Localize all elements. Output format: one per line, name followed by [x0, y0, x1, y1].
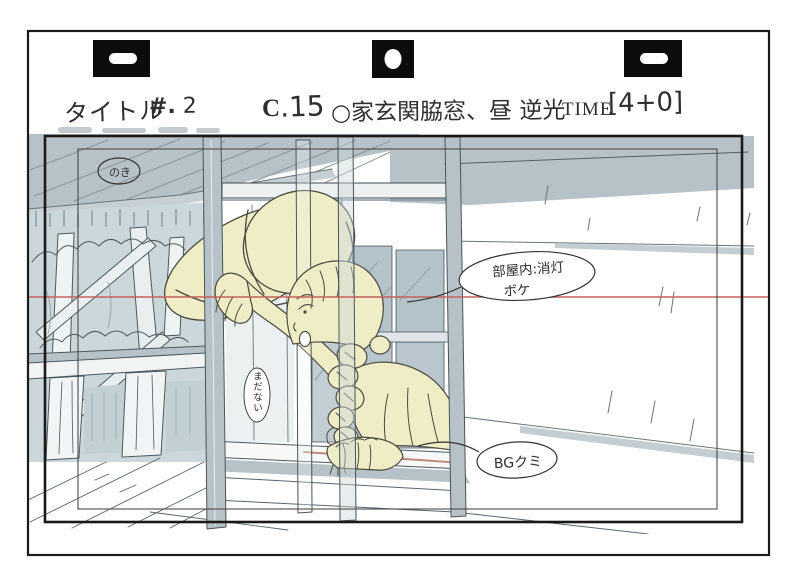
peg-hole-center	[372, 40, 414, 78]
layout-drawing	[0, 0, 800, 585]
peg-hole-right	[624, 40, 682, 77]
layout-sheet-page: { "header": { "title_label": "タイトル", "ep…	[0, 0, 800, 585]
pencil-smudges	[58, 127, 220, 133]
peg-holes	[93, 40, 682, 78]
roof-eaves-sketch	[28, 134, 420, 219]
note-bubble-notyet	[244, 368, 270, 422]
peg-hole-left	[93, 40, 150, 77]
